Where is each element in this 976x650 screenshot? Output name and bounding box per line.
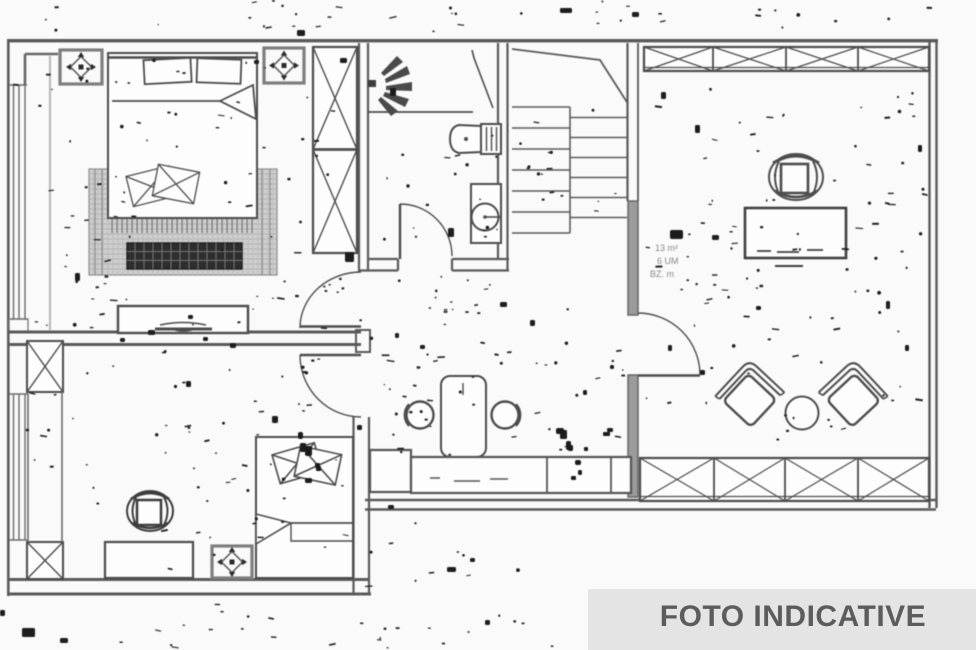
- svg-text:6 UM: 6 UM: [657, 256, 679, 266]
- svg-text:13 m²: 13 m²: [655, 243, 678, 253]
- svg-text:BZ. m: BZ. m: [650, 269, 674, 279]
